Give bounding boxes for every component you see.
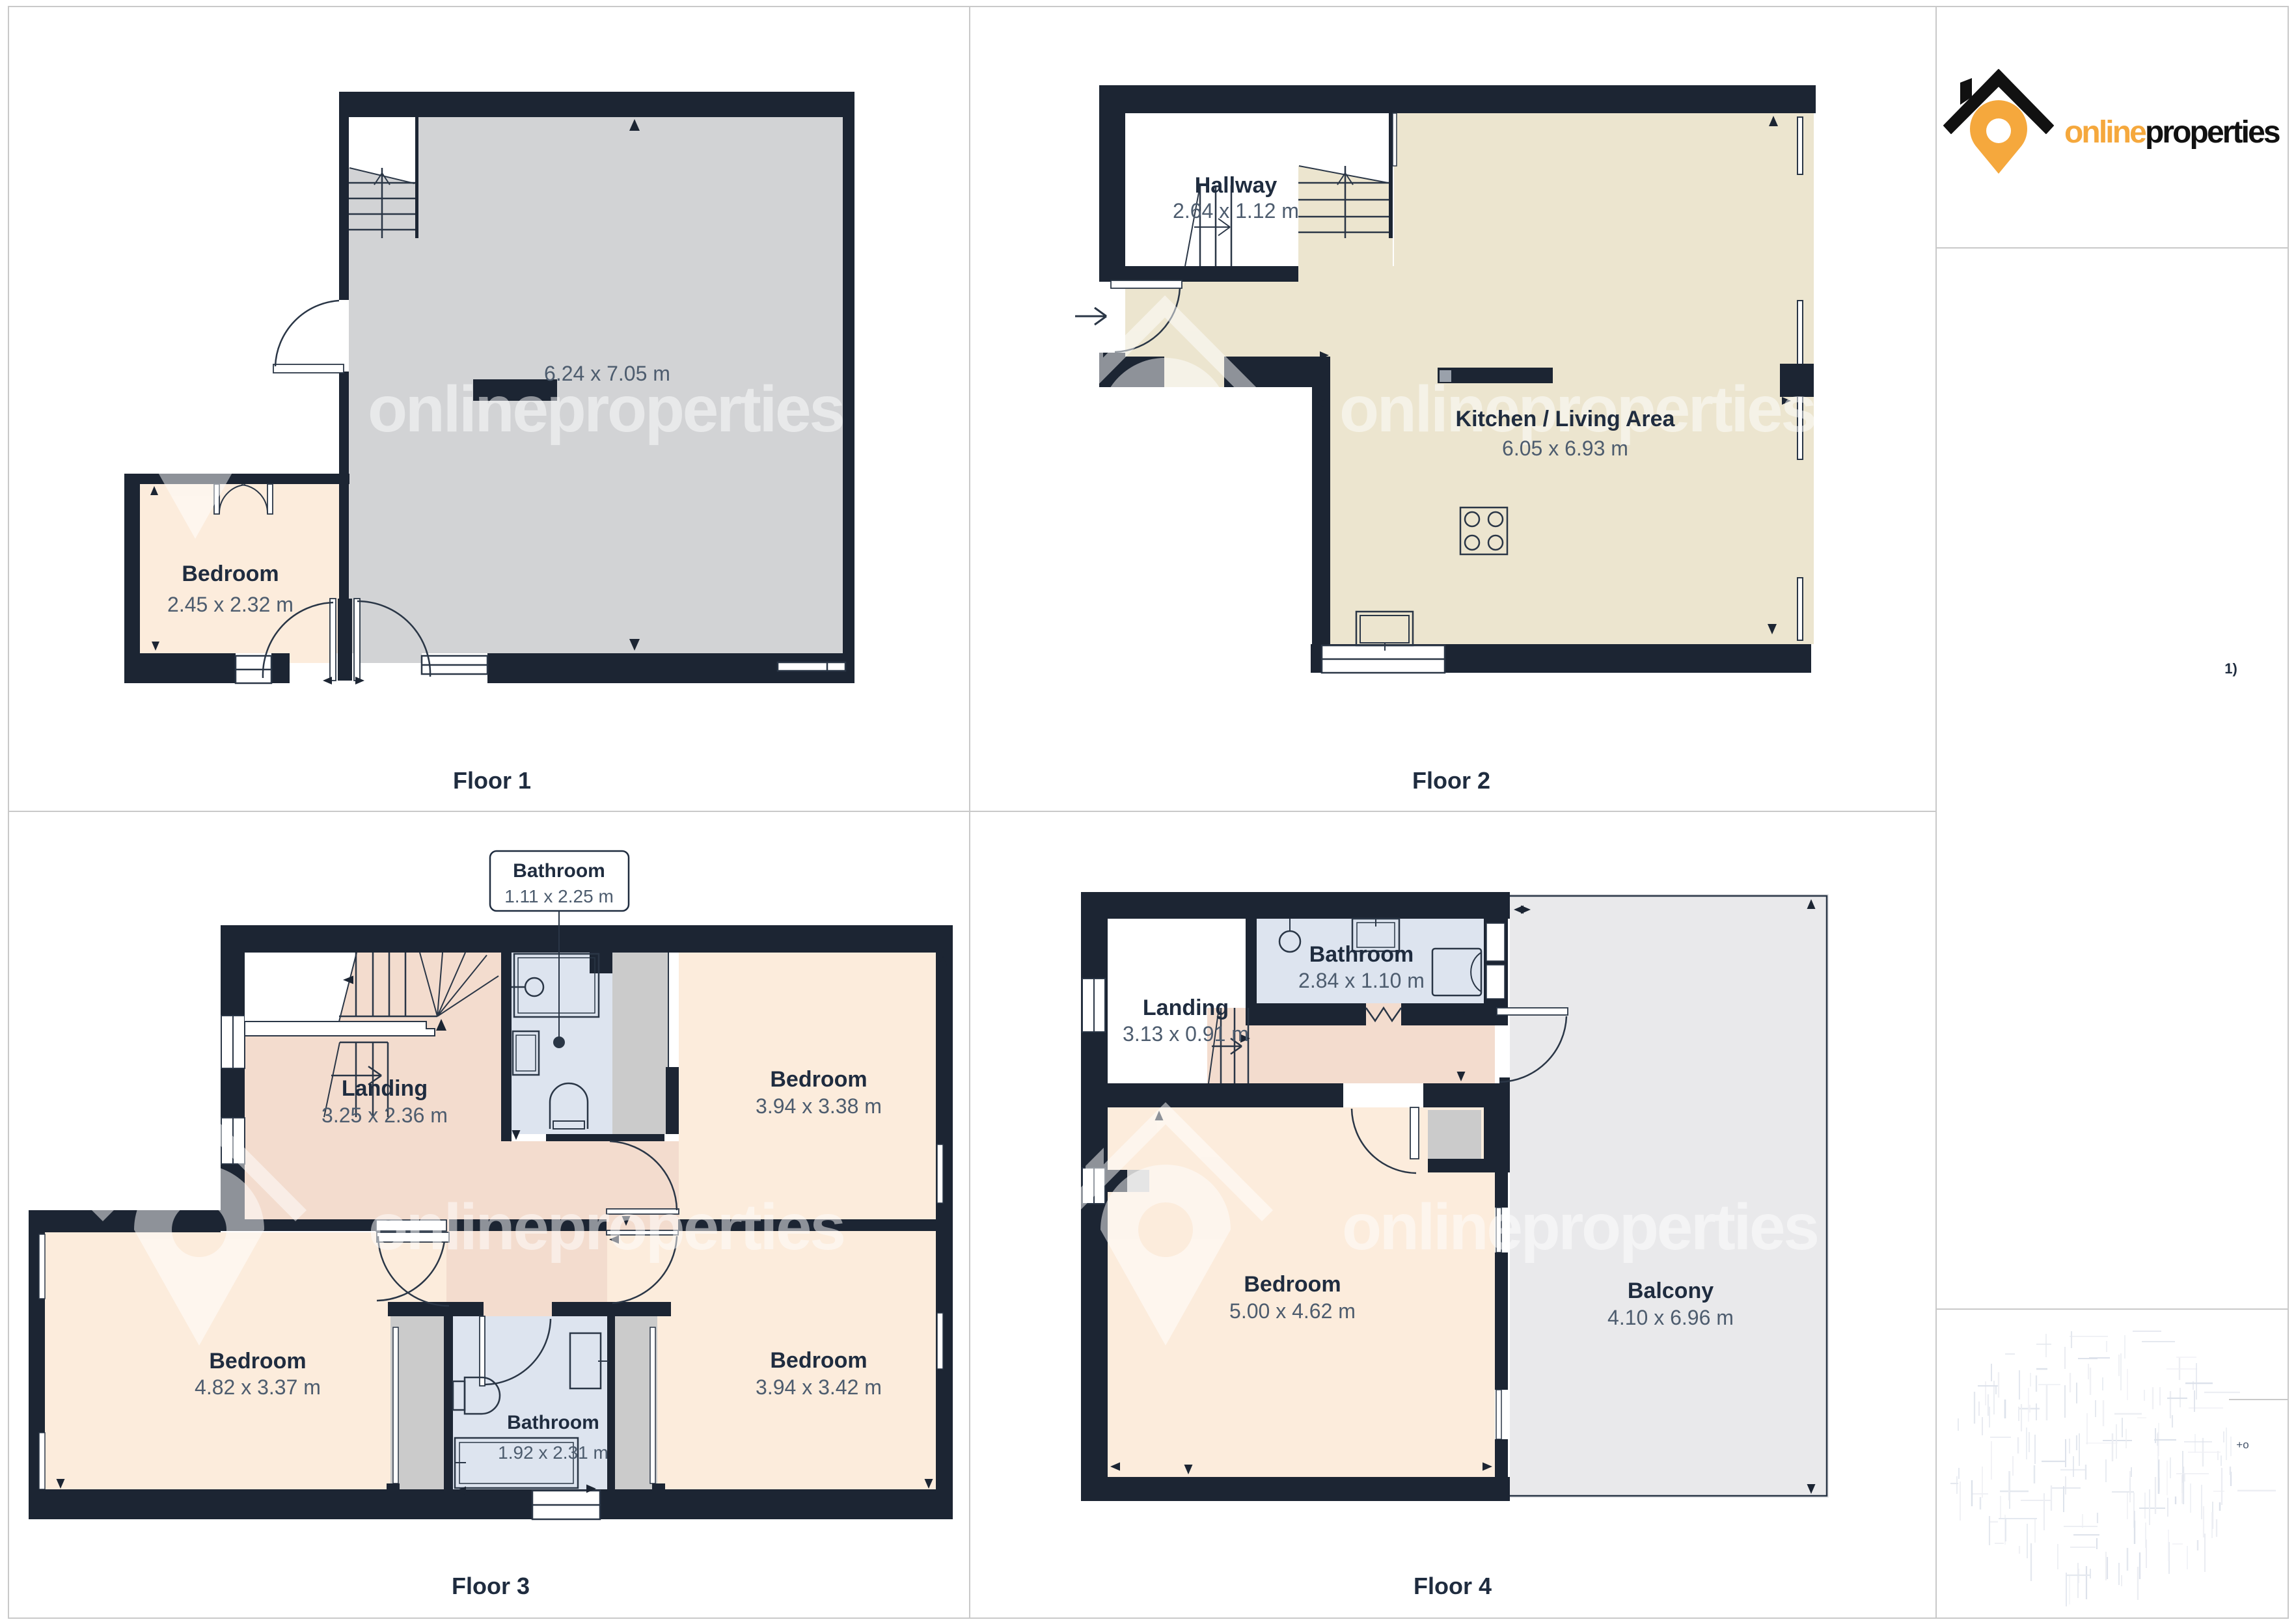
- svg-text:Bedroom: Bedroom: [1244, 1272, 1341, 1297]
- svg-text:3.94 x 3.42 m: 3.94 x 3.42 m: [756, 1375, 882, 1399]
- svg-text:Landing: Landing: [342, 1076, 428, 1101]
- svg-text:Kitchen / Living Area: Kitchen / Living Area: [1456, 407, 1676, 431]
- svg-text:onlineproperties: onlineproperties: [368, 1191, 844, 1264]
- svg-text:5.00 x 4.62 m: 5.00 x 4.62 m: [1229, 1299, 1356, 1323]
- svg-text:Bathroom: Bathroom: [1309, 942, 1414, 967]
- svg-text:1): 1): [2224, 660, 2237, 677]
- svg-text:Floor 4: Floor 4: [1414, 1573, 1492, 1599]
- svg-text:Bathroom: Bathroom: [513, 860, 605, 882]
- svg-text:Floor 2: Floor 2: [1412, 767, 1490, 794]
- svg-text:+o: +o: [2236, 1439, 2248, 1451]
- svg-text:Bedroom: Bedroom: [770, 1348, 867, 1373]
- svg-text:Balcony: Balcony: [1628, 1279, 1714, 1303]
- svg-text:Bathroom: Bathroom: [507, 1412, 599, 1433]
- svg-text:6.05 x 6.93 m: 6.05 x 6.93 m: [1502, 437, 1628, 460]
- svg-text:Landing: Landing: [1143, 995, 1229, 1020]
- svg-text:4.10 x 6.96 m: 4.10 x 6.96 m: [1607, 1306, 1734, 1329]
- svg-text:Bedroom: Bedroom: [209, 1349, 306, 1374]
- svg-text:Bedroom: Bedroom: [770, 1067, 867, 1092]
- svg-text:1.11 x 2.25 m: 1.11 x 2.25 m: [504, 886, 614, 906]
- svg-text:Bedroom: Bedroom: [182, 562, 279, 586]
- svg-text:3.94 x 3.38 m: 3.94 x 3.38 m: [756, 1094, 882, 1118]
- svg-text:onlineproperties: onlineproperties: [1342, 1191, 1818, 1264]
- svg-text:1.92 x 2.31 m: 1.92 x 2.31 m: [498, 1442, 608, 1463]
- svg-text:2.64 x 1.12 m: 2.64 x 1.12 m: [1173, 199, 1299, 223]
- svg-text:3.25 x 2.36 m: 3.25 x 2.36 m: [321, 1103, 448, 1127]
- svg-text:2.84 x 1.10 m: 2.84 x 1.10 m: [1298, 969, 1425, 992]
- svg-text:Hallway: Hallway: [1195, 173, 1278, 198]
- svg-text:4.82 x 3.37 m: 4.82 x 3.37 m: [195, 1375, 321, 1399]
- svg-text:6.24 x 7.05 m: 6.24 x 7.05 m: [544, 362, 670, 385]
- svg-text:2.45 x 2.32 m: 2.45 x 2.32 m: [167, 593, 294, 616]
- svg-text:Floor 1: Floor 1: [453, 767, 531, 794]
- svg-text:3.13 x 0.91 m: 3.13 x 0.91 m: [1123, 1022, 1249, 1046]
- svg-text:onlineproperties: onlineproperties: [2064, 115, 2280, 150]
- svg-text:Floor 3: Floor 3: [452, 1573, 530, 1599]
